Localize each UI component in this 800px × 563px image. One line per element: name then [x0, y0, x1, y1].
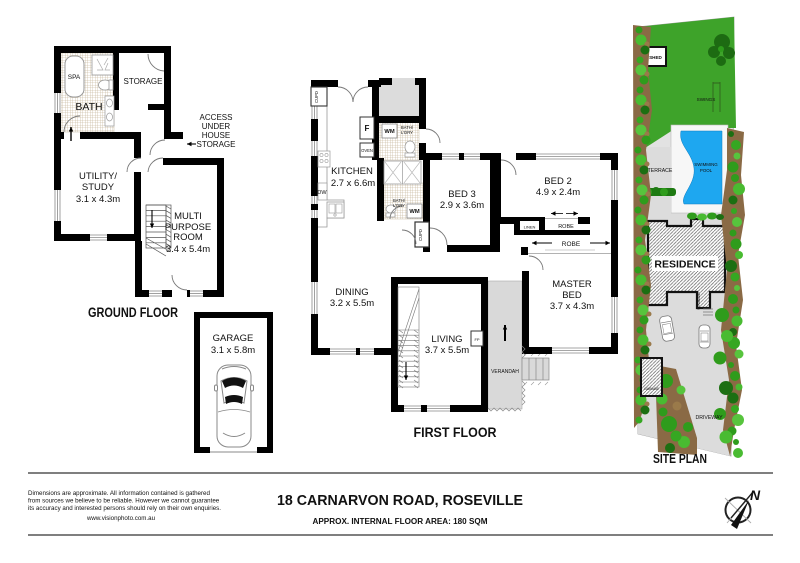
svg-text:ACCESS: ACCESS	[200, 113, 233, 122]
svg-text:DINING: DINING	[335, 287, 368, 298]
svg-text:UNDER: UNDER	[202, 122, 231, 131]
svg-text:F: F	[365, 124, 370, 133]
svg-text:WM: WM	[384, 129, 394, 135]
svg-text:BED 2: BED 2	[544, 176, 571, 187]
svg-text:DW: DW	[317, 190, 327, 196]
svg-text:DRIVEWAY: DRIVEWAY	[695, 415, 723, 421]
svg-text:ROBE: ROBE	[558, 224, 574, 230]
svg-text:FP: FP	[474, 337, 479, 342]
svg-text:CUPD: CUPD	[418, 229, 423, 241]
svg-text:2.9 x 3.6m: 2.9 x 3.6m	[440, 200, 484, 211]
svg-text:L'DRY: L'DRY	[393, 203, 405, 208]
svg-text:3.2 x 5.5m: 3.2 x 5.5m	[330, 298, 374, 309]
svg-text:UTILITY/: UTILITY/	[79, 171, 117, 182]
svg-text:OVEN: OVEN	[361, 148, 373, 153]
svg-text:BATH: BATH	[75, 101, 102, 113]
svg-text:its accuracy and interested pe: its accuracy and interested persons shou…	[28, 505, 221, 512]
svg-text:VERANDAH: VERANDAH	[697, 291, 701, 309]
svg-text:RESIDENCE: RESIDENCE	[654, 259, 715, 271]
svg-text:SWINGS: SWINGS	[697, 97, 716, 102]
svg-text:KITCHEN: KITCHEN	[331, 166, 373, 177]
svg-text:GARAGE: GARAGE	[213, 333, 254, 344]
svg-text:VERANDAH: VERANDAH	[491, 369, 519, 375]
svg-text:www.visionphoto.com.au: www.visionphoto.com.au	[86, 515, 156, 522]
svg-text:BED: BED	[562, 290, 582, 301]
svg-text:WM: WM	[409, 209, 419, 215]
svg-text:3.4 x 5.4m: 3.4 x 5.4m	[166, 244, 210, 255]
svg-text:from sources we believe to be: from sources we believe to be reliable. …	[28, 498, 220, 505]
svg-text:GROUND FLOOR: GROUND FLOOR	[88, 305, 178, 320]
svg-text:CUPD: CUPD	[314, 91, 319, 103]
svg-text:LINEN: LINEN	[524, 225, 536, 230]
svg-text:APPROX. INTERNAL FLOOR AREA: 1: APPROX. INTERNAL FLOOR AREA: 180 SQM	[313, 516, 488, 526]
svg-text:TERRACE: TERRACE	[648, 168, 673, 174]
svg-text:POOL: POOL	[700, 168, 713, 173]
svg-text:SPA: SPA	[68, 74, 81, 81]
svg-text:L'DRY: L'DRY	[401, 130, 413, 135]
svg-text:3.1 x 5.8m: 3.1 x 5.8m	[211, 345, 255, 356]
svg-text:STORAGE: STORAGE	[197, 140, 236, 149]
svg-text:3.1 x 4.3m: 3.1 x 4.3m	[76, 194, 120, 205]
svg-text:HOUSE: HOUSE	[202, 131, 230, 140]
svg-text:STUDY: STUDY	[82, 182, 115, 193]
svg-text:ROBE: ROBE	[562, 241, 581, 248]
svg-text:N: N	[750, 487, 761, 503]
svg-text:SITE PLAN: SITE PLAN	[653, 452, 707, 466]
svg-text:Dimensions are approximate.: Dimensions are approximate. All informat…	[28, 490, 211, 497]
svg-text:3.7 x 5.5m: 3.7 x 5.5m	[425, 345, 469, 356]
svg-text:3.7 x 4.3m: 3.7 x 4.3m	[550, 301, 594, 312]
svg-text:4.9 x 2.4m: 4.9 x 2.4m	[536, 187, 580, 198]
svg-text:SWIMMING: SWIMMING	[694, 162, 718, 167]
svg-text:2.7 x 6.6m: 2.7 x 6.6m	[331, 178, 375, 189]
svg-text:SHED: SHED	[649, 55, 662, 60]
svg-text:18 CARNARVON ROAD, ROSEVILLE: 18 CARNARVON ROAD, ROSEVILLE	[277, 493, 523, 509]
svg-text:STORAGE: STORAGE	[124, 77, 163, 86]
svg-text:BED 3: BED 3	[448, 189, 475, 200]
svg-text:LIVING: LIVING	[431, 334, 462, 345]
svg-text:GARAGE: GARAGE	[644, 387, 659, 391]
svg-text:FIRST FLOOR: FIRST FLOOR	[414, 425, 497, 440]
svg-text:ROOM: ROOM	[173, 232, 203, 243]
svg-text:MASTER: MASTER	[552, 279, 592, 290]
svg-text:MULTI: MULTI	[174, 211, 202, 222]
